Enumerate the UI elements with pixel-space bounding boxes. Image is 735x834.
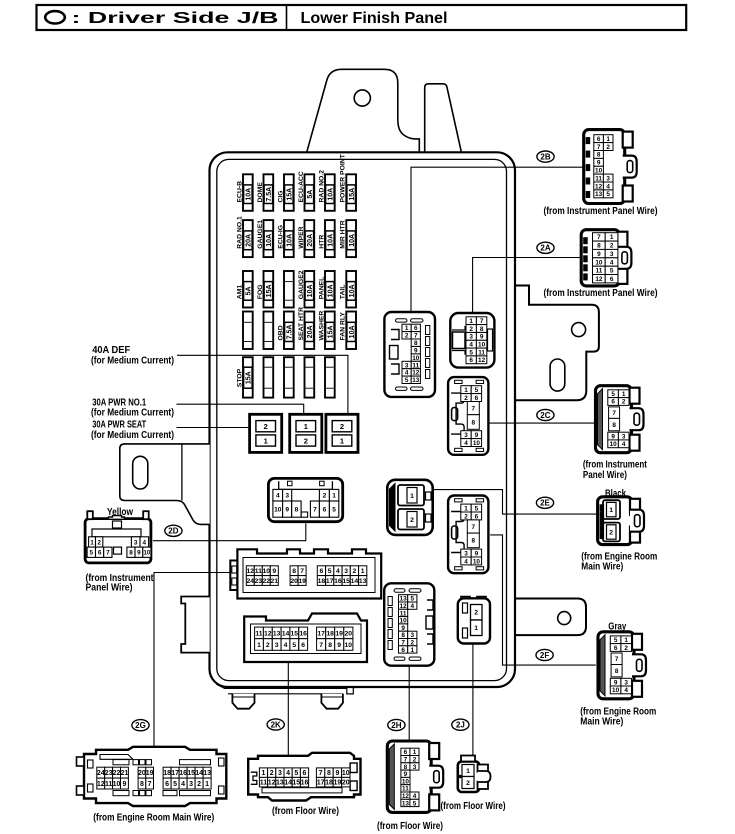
- svg-text:9: 9: [137, 550, 141, 557]
- svg-text:7: 7: [319, 642, 323, 649]
- svg-text:10A: 10A: [287, 234, 294, 247]
- svg-text:10: 10: [144, 550, 151, 556]
- svg-text:17: 17: [171, 770, 179, 777]
- svg-text:11: 11: [595, 175, 602, 182]
- svg-text:1: 1: [610, 234, 614, 241]
- svg-text:20: 20: [345, 630, 353, 637]
- svg-text:2J: 2J: [456, 721, 465, 730]
- svg-text:ECU-IG: ECU-IG: [277, 225, 284, 249]
- svg-text:10A: 10A: [349, 284, 356, 297]
- svg-text:1: 1: [361, 568, 365, 575]
- svg-text:2: 2: [340, 422, 344, 431]
- svg-text:: Driver Side J/B: : Driver Side J/B: [72, 10, 279, 27]
- svg-text:Panel Wire): Panel Wire): [86, 583, 133, 594]
- svg-text:14: 14: [351, 578, 359, 585]
- svg-text:9: 9: [611, 433, 615, 440]
- svg-text:9: 9: [123, 781, 127, 788]
- svg-text:4: 4: [276, 493, 280, 500]
- svg-text:Main Wire): Main Wire): [581, 562, 623, 573]
- svg-text:(from Instrument Panel Wire): (from Instrument Panel Wire): [544, 288, 658, 299]
- svg-text:8: 8: [295, 507, 299, 514]
- svg-text:1: 1: [340, 437, 344, 446]
- svg-text:4: 4: [336, 568, 340, 575]
- svg-text:6: 6: [98, 550, 102, 557]
- svg-text:7: 7: [472, 524, 476, 531]
- svg-text:8: 8: [292, 568, 296, 575]
- svg-text:11: 11: [255, 568, 262, 575]
- svg-text:3: 3: [464, 550, 468, 557]
- svg-text:9: 9: [475, 432, 479, 439]
- svg-text:1: 1: [474, 625, 478, 632]
- svg-text:10: 10: [473, 558, 481, 565]
- svg-text:10A: 10A: [328, 234, 335, 247]
- svg-text:8: 8: [597, 152, 601, 159]
- svg-text:2: 2: [474, 610, 478, 617]
- svg-text:22: 22: [113, 770, 121, 777]
- svg-text:14: 14: [284, 780, 292, 787]
- svg-text:POWER POINT: POWER POINT: [340, 153, 347, 202]
- svg-text:13: 13: [203, 770, 211, 777]
- svg-text:2: 2: [270, 770, 274, 777]
- svg-text:10: 10: [595, 259, 603, 266]
- svg-text:2: 2: [622, 399, 626, 406]
- svg-text:12: 12: [268, 780, 276, 787]
- svg-text:15: 15: [187, 770, 195, 777]
- svg-text:1: 1: [622, 391, 626, 398]
- svg-text:2: 2: [353, 568, 357, 575]
- svg-text:PANEL: PANEL: [318, 277, 325, 300]
- svg-text:8: 8: [480, 326, 484, 333]
- svg-text:1: 1: [606, 136, 610, 143]
- svg-text:15A: 15A: [266, 284, 273, 297]
- svg-text:23: 23: [105, 770, 113, 777]
- svg-text:2: 2: [264, 422, 268, 431]
- svg-text:SEAT HTR: SEAT HTR: [298, 307, 305, 341]
- svg-text:AM1: AM1: [236, 285, 243, 300]
- svg-text:20: 20: [290, 578, 298, 585]
- svg-text:7: 7: [615, 656, 619, 663]
- svg-text:10: 10: [595, 168, 603, 175]
- svg-text:9: 9: [475, 550, 479, 557]
- svg-text:6: 6: [597, 136, 601, 143]
- svg-text:20A: 20A: [307, 325, 314, 338]
- svg-text:10: 10: [345, 642, 353, 649]
- svg-text:6: 6: [301, 642, 305, 649]
- svg-text:10: 10: [274, 507, 282, 514]
- svg-text:3: 3: [469, 334, 473, 341]
- svg-text:(from Floor Wire): (from Floor Wire): [441, 801, 506, 812]
- svg-text:4: 4: [284, 642, 288, 649]
- svg-text:10: 10: [478, 342, 486, 349]
- svg-text:7: 7: [106, 550, 110, 557]
- svg-text:1: 1: [464, 505, 468, 512]
- svg-text:1: 1: [411, 647, 415, 654]
- svg-text:2H: 2H: [391, 721, 401, 730]
- svg-text:15A: 15A: [287, 188, 294, 201]
- svg-text:4: 4: [411, 603, 415, 610]
- svg-text:2B: 2B: [540, 153, 550, 162]
- svg-text:20: 20: [342, 780, 350, 787]
- svg-text:10A: 10A: [245, 188, 252, 201]
- svg-text:19: 19: [146, 770, 154, 777]
- svg-text:18: 18: [318, 578, 326, 585]
- svg-text:17: 17: [326, 578, 334, 585]
- svg-text:24: 24: [247, 578, 255, 585]
- svg-text:4: 4: [610, 259, 614, 266]
- svg-text:TAIL: TAIL: [340, 285, 347, 300]
- svg-text:16: 16: [334, 578, 342, 585]
- svg-text:13: 13: [273, 630, 281, 637]
- svg-text:12: 12: [97, 781, 105, 788]
- svg-text:3: 3: [344, 568, 348, 575]
- svg-text:8: 8: [140, 781, 144, 788]
- svg-text:9: 9: [337, 642, 341, 649]
- svg-text:2F: 2F: [540, 651, 549, 660]
- svg-text:5A: 5A: [245, 286, 252, 295]
- svg-text:(from Engine Room Main Wire): (from Engine Room Main Wire): [93, 812, 214, 823]
- svg-text:13: 13: [412, 377, 420, 384]
- svg-text:7: 7: [597, 234, 601, 241]
- svg-text:RAD NO.1: RAD NO.1: [236, 216, 243, 249]
- svg-text:5: 5: [614, 637, 618, 644]
- svg-text:8: 8: [129, 550, 133, 557]
- svg-text:2: 2: [464, 395, 468, 402]
- svg-text:2: 2: [304, 437, 308, 446]
- svg-text:5: 5: [475, 505, 479, 512]
- svg-text:WASHER: WASHER: [318, 311, 325, 341]
- svg-text:15A: 15A: [245, 371, 252, 384]
- svg-text:9: 9: [285, 507, 289, 514]
- svg-text:1: 1: [90, 539, 94, 546]
- svg-text:2: 2: [469, 326, 473, 333]
- svg-text:2: 2: [410, 517, 414, 524]
- svg-text:13: 13: [276, 780, 284, 787]
- svg-text:2K: 2K: [271, 720, 281, 729]
- svg-text:8: 8: [327, 770, 331, 777]
- svg-text:5: 5: [610, 268, 614, 275]
- svg-text:7: 7: [300, 568, 304, 575]
- svg-text:11: 11: [255, 630, 262, 637]
- svg-text:10: 10: [473, 440, 481, 447]
- svg-text:19: 19: [335, 630, 343, 637]
- svg-text:20A: 20A: [245, 234, 252, 247]
- svg-text:10A: 10A: [328, 284, 335, 297]
- svg-text:9: 9: [597, 160, 601, 167]
- svg-text:8: 8: [615, 668, 619, 675]
- svg-text:(for Medium Current): (for Medium Current): [91, 407, 174, 418]
- svg-text:4: 4: [181, 781, 185, 788]
- svg-text:5: 5: [328, 568, 332, 575]
- svg-text:21: 21: [271, 578, 279, 585]
- svg-text:1: 1: [257, 642, 261, 649]
- svg-text:5: 5: [413, 800, 417, 807]
- svg-text:15A: 15A: [328, 325, 335, 338]
- svg-text:6: 6: [401, 647, 405, 654]
- svg-text:13: 13: [595, 191, 603, 198]
- svg-text:1: 1: [332, 493, 336, 500]
- svg-text:8: 8: [472, 538, 476, 545]
- svg-text:ECU-B: ECU-B: [236, 181, 243, 203]
- svg-text:5: 5: [611, 391, 615, 398]
- svg-text:4: 4: [286, 770, 290, 777]
- svg-text:1: 1: [264, 437, 268, 446]
- svg-text:6: 6: [611, 399, 615, 406]
- svg-text:6: 6: [610, 276, 614, 283]
- svg-text:13: 13: [359, 578, 367, 585]
- svg-text:16: 16: [179, 770, 187, 777]
- svg-text:10A: 10A: [349, 325, 356, 338]
- svg-text:11: 11: [105, 781, 113, 788]
- svg-text:7: 7: [148, 781, 152, 788]
- svg-text:2: 2: [323, 493, 327, 500]
- svg-text:1: 1: [262, 770, 266, 777]
- svg-text:8: 8: [472, 419, 476, 426]
- svg-text:6: 6: [614, 645, 618, 652]
- svg-text:5: 5: [475, 387, 479, 394]
- svg-text:5: 5: [606, 191, 610, 198]
- svg-text:8: 8: [612, 422, 616, 429]
- svg-text:15: 15: [291, 630, 299, 637]
- svg-text:7: 7: [480, 318, 484, 325]
- svg-text:8: 8: [328, 642, 332, 649]
- svg-text:ECU-ACC: ECU-ACC: [298, 171, 305, 202]
- svg-text:4: 4: [464, 440, 468, 447]
- svg-text:7: 7: [313, 507, 317, 514]
- svg-text:HTR: HTR: [318, 235, 325, 249]
- svg-text:6: 6: [165, 781, 169, 788]
- svg-text:Lower Finish Panel: Lower Finish Panel: [301, 10, 448, 27]
- svg-text:GAUGE2: GAUGE2: [298, 270, 305, 299]
- svg-text:23: 23: [255, 578, 263, 585]
- svg-text:10A: 10A: [349, 234, 356, 247]
- svg-text:2: 2: [609, 530, 613, 537]
- svg-text:7: 7: [597, 144, 601, 151]
- svg-text:10: 10: [612, 687, 620, 694]
- svg-text:MIR HTR: MIR HTR: [340, 220, 347, 248]
- svg-text:2A: 2A: [540, 244, 550, 253]
- svg-text:(for Medium Current): (for Medium Current): [91, 430, 174, 441]
- svg-text:4: 4: [143, 539, 147, 546]
- svg-text:18: 18: [325, 780, 333, 787]
- svg-text:3: 3: [606, 175, 610, 182]
- svg-text:9: 9: [597, 251, 601, 258]
- svg-text:4: 4: [622, 441, 626, 448]
- svg-text:10: 10: [610, 441, 618, 448]
- svg-text:3: 3: [134, 539, 138, 546]
- svg-text:3: 3: [624, 680, 628, 687]
- svg-text:13: 13: [402, 800, 410, 807]
- svg-text:2: 2: [405, 333, 409, 340]
- svg-text:18: 18: [326, 630, 334, 637]
- svg-text:2: 2: [197, 781, 201, 788]
- svg-text:6: 6: [323, 507, 327, 514]
- svg-text:11: 11: [478, 349, 485, 356]
- svg-text:22: 22: [263, 578, 271, 585]
- svg-text:GAUGE1: GAUGE1: [257, 220, 264, 249]
- svg-text:(from Floor Wire): (from Floor Wire): [377, 821, 443, 832]
- svg-text:16: 16: [299, 630, 307, 637]
- svg-text:1: 1: [464, 387, 468, 394]
- svg-text:12: 12: [247, 568, 255, 575]
- svg-text:WIPER: WIPER: [298, 226, 305, 248]
- svg-text:12: 12: [478, 357, 486, 364]
- svg-text:4: 4: [464, 558, 468, 565]
- svg-text:3: 3: [622, 433, 626, 440]
- svg-text:CIG: CIG: [277, 190, 284, 202]
- svg-text:2: 2: [464, 513, 468, 520]
- svg-text:DOME: DOME: [257, 182, 264, 203]
- svg-text:Panel Wire): Panel Wire): [583, 470, 627, 481]
- svg-text:(for Medium Current): (for Medium Current): [91, 356, 174, 367]
- svg-text:19: 19: [298, 578, 306, 585]
- svg-text:STOP: STOP: [236, 368, 243, 387]
- svg-text:30A PWR SEAT: 30A PWR SEAT: [92, 420, 146, 431]
- svg-text:40A DEF: 40A DEF: [92, 345, 130, 356]
- svg-text:5: 5: [173, 781, 177, 788]
- svg-text:7.5A: 7.5A: [266, 187, 273, 202]
- svg-text:21: 21: [121, 770, 129, 777]
- svg-text:3: 3: [189, 781, 193, 788]
- svg-text:10A: 10A: [266, 234, 273, 247]
- svg-text:7.5A: 7.5A: [287, 325, 294, 340]
- svg-text:4: 4: [606, 183, 610, 190]
- svg-text:5: 5: [294, 770, 298, 777]
- svg-text:2E: 2E: [540, 499, 550, 508]
- svg-text:2: 2: [266, 642, 270, 649]
- svg-text:FOG: FOG: [257, 284, 264, 299]
- svg-text:14: 14: [282, 630, 290, 637]
- svg-text:18: 18: [163, 770, 171, 777]
- svg-text:15A: 15A: [349, 188, 356, 201]
- svg-text:2G: 2G: [135, 721, 146, 730]
- svg-text:5: 5: [90, 550, 94, 557]
- svg-text:6: 6: [303, 770, 307, 777]
- svg-text:5A: 5A: [307, 190, 314, 199]
- svg-text:Main Wire): Main Wire): [580, 716, 623, 727]
- svg-text:2C: 2C: [540, 411, 550, 420]
- svg-text:10: 10: [113, 781, 121, 788]
- svg-text:12: 12: [595, 276, 603, 283]
- svg-text:20A: 20A: [307, 234, 314, 247]
- svg-text:1: 1: [466, 768, 470, 775]
- svg-text:7: 7: [612, 410, 616, 417]
- svg-text:2: 2: [466, 780, 470, 787]
- svg-text:3: 3: [278, 770, 282, 777]
- svg-text:(from Floor Wire): (from Floor Wire): [272, 806, 339, 817]
- svg-text:OBD: OBD: [277, 325, 284, 340]
- svg-text:3: 3: [413, 764, 417, 771]
- svg-text:3: 3: [285, 493, 289, 500]
- svg-text:11: 11: [596, 268, 603, 275]
- svg-text:10: 10: [342, 770, 350, 777]
- svg-text:5: 5: [405, 377, 409, 384]
- svg-text:10: 10: [263, 568, 271, 575]
- svg-text:1: 1: [609, 507, 613, 514]
- svg-text:9: 9: [480, 334, 484, 341]
- svg-text:9: 9: [335, 770, 339, 777]
- svg-text:3: 3: [610, 251, 614, 258]
- svg-text:5: 5: [332, 507, 336, 514]
- svg-text:9: 9: [614, 680, 618, 687]
- svg-text:3: 3: [464, 432, 468, 439]
- svg-text:6: 6: [320, 568, 324, 575]
- svg-text:24: 24: [97, 770, 105, 777]
- svg-text:14: 14: [195, 770, 203, 777]
- svg-text:2: 2: [606, 144, 610, 151]
- svg-text:1: 1: [410, 493, 414, 500]
- svg-text:16: 16: [301, 780, 309, 787]
- svg-text:7: 7: [472, 405, 476, 412]
- svg-text:2: 2: [97, 539, 101, 546]
- svg-text:1: 1: [304, 422, 308, 431]
- svg-text:RAD NO.2: RAD NO.2: [318, 170, 325, 203]
- svg-text:11: 11: [260, 780, 268, 787]
- svg-text:10A: 10A: [307, 284, 314, 297]
- svg-text:15: 15: [342, 578, 350, 585]
- svg-text:1: 1: [469, 318, 473, 325]
- svg-text:1: 1: [205, 781, 209, 788]
- svg-text:12: 12: [264, 630, 272, 637]
- svg-text:17: 17: [317, 630, 325, 637]
- svg-text:FAN RLY: FAN RLY: [340, 312, 347, 341]
- svg-text:12: 12: [595, 183, 603, 190]
- svg-text:6: 6: [475, 513, 479, 520]
- svg-text:9: 9: [272, 568, 276, 575]
- svg-text:5: 5: [292, 642, 296, 649]
- svg-text:15: 15: [292, 780, 300, 787]
- svg-text:6: 6: [475, 395, 479, 402]
- svg-text:5: 5: [469, 349, 473, 356]
- svg-text:(from Instrument: (from Instrument: [583, 459, 648, 470]
- svg-text:2: 2: [610, 243, 614, 250]
- svg-text:4: 4: [624, 687, 628, 694]
- svg-text:17: 17: [317, 780, 325, 787]
- svg-text:10A: 10A: [328, 188, 335, 201]
- svg-text:4: 4: [469, 342, 473, 349]
- svg-text:3: 3: [275, 642, 279, 649]
- svg-text:6: 6: [469, 357, 473, 364]
- svg-text:7: 7: [319, 770, 323, 777]
- svg-text:(from Instrument Panel Wire): (from Instrument Panel Wire): [544, 206, 658, 217]
- svg-text:1: 1: [624, 637, 628, 644]
- svg-text:2D: 2D: [168, 527, 178, 536]
- svg-text:2: 2: [624, 645, 628, 652]
- svg-text:19: 19: [334, 780, 342, 787]
- svg-text:8: 8: [597, 243, 601, 250]
